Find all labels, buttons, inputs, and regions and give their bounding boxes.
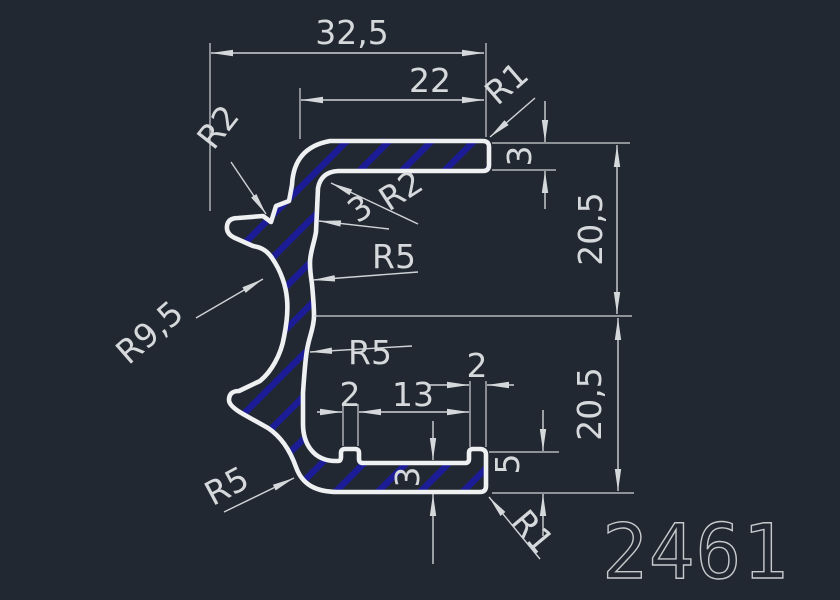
- dim-label-right-tab-width: 2: [467, 346, 488, 385]
- dim-label-lower-inner-radius: R5: [348, 333, 392, 372]
- leader-upper-inner-radius: R5: [313, 237, 418, 280]
- dim-label-lower-height: 20,5: [570, 367, 609, 440]
- leader-left-corner-radius: R2: [189, 98, 266, 214]
- dim-label-bottom-corner-radius: R1: [504, 502, 562, 561]
- leader-bottom-left-radius: R5: [198, 458, 294, 513]
- dim-label-upper-inner-radius: R5: [372, 237, 416, 276]
- leader-concave-radius: R9,5: [108, 279, 263, 372]
- dim-label-groove-width: 13: [392, 375, 434, 414]
- dim-label-concave-radius: R9,5: [108, 293, 191, 372]
- dim-label-left-tab-width: 2: [340, 375, 361, 414]
- dim-flange-width: 22: [300, 61, 484, 139]
- dim-label-upper-height: 20,5: [571, 192, 610, 265]
- cad-canvas: 32,5 22 3 20,5 20,5 5 2: [0, 0, 840, 600]
- drawing-number: 2461: [602, 507, 789, 596]
- dim-label-left-corner-radius: R2: [189, 98, 247, 157]
- leader-lower-inner-radius: R5: [310, 333, 412, 372]
- dim-label-right-wall-height: 5: [488, 454, 527, 475]
- dim-label-flange-thickness: 3: [500, 146, 539, 167]
- dim-overall-width: 32,5: [210, 13, 486, 211]
- dim-label-bottom-left-radius: R5: [198, 458, 255, 513]
- dim-flange-thickness: 3: [492, 101, 556, 209]
- dim-left-tab-width: 2: [317, 375, 361, 446]
- dim-label-groove-floor-thickness: 3: [388, 467, 427, 488]
- dim-label-flange-width: 22: [409, 61, 451, 100]
- dim-groove-width: 13: [359, 375, 469, 414]
- leader-bottom-corner-radius: R1: [489, 497, 562, 561]
- cad-drawing-viewport[interactable]: 32,5 22 3 20,5 20,5 5 2: [0, 0, 840, 600]
- dim-label-overall-width: 32,5: [315, 13, 388, 52]
- dim-right-tab-width: 2: [429, 346, 514, 447]
